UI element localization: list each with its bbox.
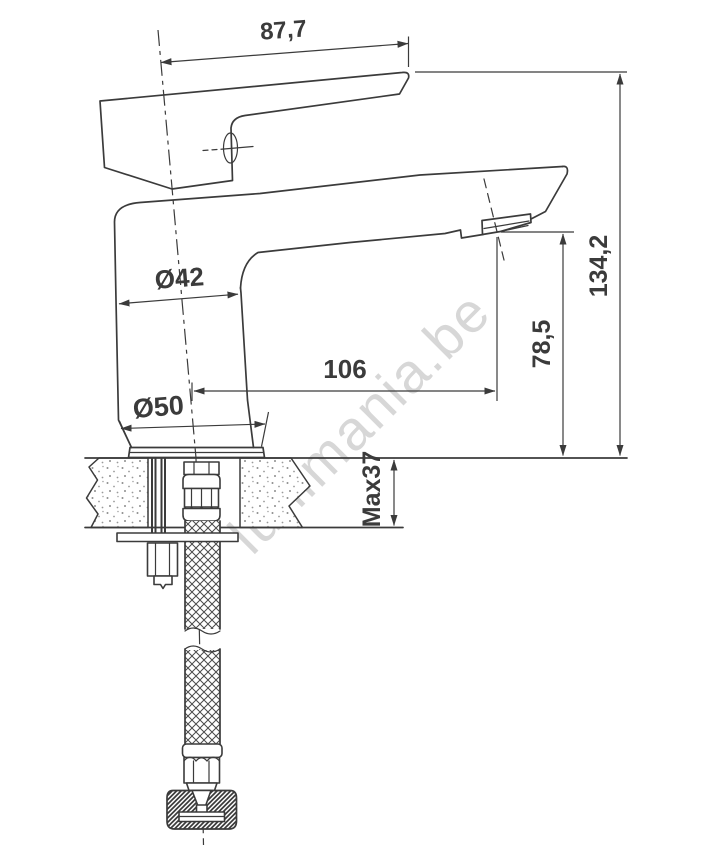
dimension-d50: Ø50 bbox=[120, 390, 269, 446]
dim-d42-label: Ø42 bbox=[154, 261, 205, 295]
braided-hose bbox=[185, 521, 220, 744]
dim-d50-ext-left bbox=[120, 421, 132, 447]
dim-134-2-label: 134,2 bbox=[585, 235, 613, 298]
spout-tip-outline bbox=[531, 166, 567, 219]
dim-78-5-label: 78,5 bbox=[528, 320, 556, 369]
countertop-left-section bbox=[87, 458, 149, 528]
dim-87-7-label: 87,7 bbox=[259, 15, 308, 46]
upper-hose-fitting bbox=[183, 462, 220, 521]
dimension-d42: Ø42 bbox=[119, 261, 238, 304]
faucet-dimension-drawing: lunimania.be bbox=[0, 0, 711, 851]
technical-drawing-page: lunimania.be bbox=[0, 0, 711, 851]
washer-plate bbox=[117, 533, 238, 542]
dimension-max37: Max37 bbox=[358, 451, 394, 527]
dim-max37-label: Max37 bbox=[358, 451, 386, 527]
dimension-78-5: 78,5 bbox=[501, 232, 574, 456]
mounting-rod bbox=[152, 458, 165, 533]
spout-underside-outline bbox=[241, 230, 484, 288]
pivot-centerline-dashed bbox=[203, 149, 224, 151]
aerator-lip-line bbox=[501, 226, 529, 232]
body-right-edge bbox=[241, 288, 254, 448]
hose-end-fitting bbox=[183, 744, 223, 791]
rod-hex-nut bbox=[148, 543, 178, 589]
dim-d50-label: Ø50 bbox=[132, 390, 185, 424]
pivot-centerline-solid bbox=[224, 147, 253, 150]
connection-nut bbox=[167, 791, 237, 830]
dimension-87-7: 87,7 bbox=[161, 15, 409, 67]
handle-lever-outline bbox=[100, 72, 409, 189]
dim-d42-line bbox=[119, 294, 238, 304]
dimension-134-2: 134,2 bbox=[415, 72, 627, 456]
dim-d50-ext-right bbox=[262, 412, 269, 447]
dim-106-label: 106 bbox=[323, 354, 366, 384]
dim-87-7-line bbox=[161, 44, 408, 63]
